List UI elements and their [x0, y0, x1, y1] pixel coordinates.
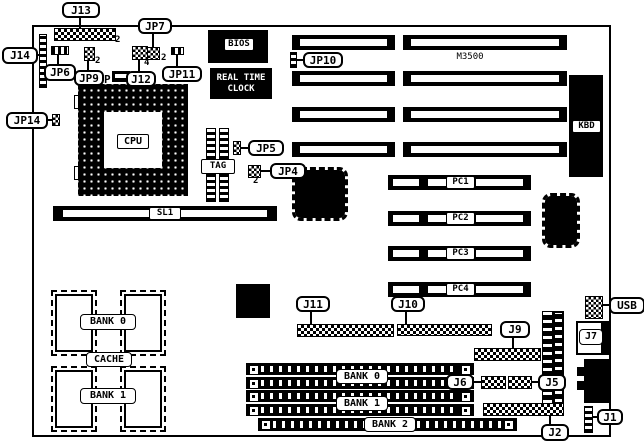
jp11-pointer-line	[176, 55, 178, 66]
isa-slot-4-left	[292, 142, 395, 157]
j9-header	[474, 348, 541, 361]
isa-slot-1-left	[292, 35, 395, 50]
jp9-pin-number: 2	[95, 57, 100, 66]
j13-label: J13	[62, 2, 100, 18]
jp11-label: JP11	[162, 66, 202, 82]
pc1-label: PC1	[446, 176, 475, 189]
j10-header	[397, 324, 492, 336]
io-chip	[236, 284, 270, 318]
jp9-jumper	[84, 47, 95, 61]
j6-label: J6	[446, 374, 474, 390]
jp6-jumper	[51, 46, 69, 55]
pc4-label: PC4	[446, 283, 475, 296]
j13-pin-number: 2	[115, 36, 120, 45]
pc2-label: PC2	[446, 212, 475, 225]
sl1-label: SL1	[149, 207, 181, 220]
j9-label: J9	[500, 321, 530, 338]
isa-slot-2-left	[292, 71, 395, 86]
j1-connector	[584, 406, 593, 433]
p-mark: P	[104, 74, 111, 85]
jp5-label: JP5	[248, 140, 284, 156]
simm-bank2-label: BANK 2	[364, 417, 416, 432]
j13-header	[54, 28, 116, 41]
isa-slot-3-left	[292, 107, 395, 122]
jp11-jumper	[171, 47, 184, 55]
rtc-chip: REAL TIME CLOCK	[210, 68, 272, 99]
j5-label: J5	[538, 374, 566, 391]
j12-pointer-line	[138, 60, 140, 71]
pc3-label: PC3	[446, 247, 475, 260]
j11-pointer-line	[310, 312, 312, 324]
motherboard-diagram: 2 J13 J14 JP6 2 JP9 P 4 J12 2 JP7 JP11 J…	[0, 0, 644, 446]
usb-label: USB	[609, 297, 644, 314]
isa-slot-3-right	[403, 107, 567, 122]
external-port-stack	[584, 359, 611, 403]
jp5-jumper	[233, 141, 241, 155]
j2-label: J2	[541, 424, 569, 441]
jp7-pointer-line	[152, 34, 154, 47]
j6-pointer-line	[474, 381, 481, 383]
jp10-connector	[290, 52, 297, 68]
j5-connector-small	[508, 376, 532, 389]
rtc-label-line1: REAL TIME	[217, 73, 266, 84]
cpu-socket-tab	[74, 166, 79, 180]
j6-connector	[481, 376, 506, 389]
external-port-notch	[577, 367, 585, 376]
jp7-pin-number: 2	[161, 54, 166, 63]
board-model-text: M3500	[420, 53, 520, 62]
external-port-notch	[577, 381, 585, 390]
chipset-qfp-2	[542, 193, 580, 248]
j10-pointer-line	[405, 312, 407, 324]
tag-label: TAG	[201, 159, 235, 174]
jp4-pointer-line	[261, 170, 270, 172]
jp14-jumper	[52, 114, 60, 126]
jp10-label: JP10	[303, 52, 343, 68]
jp9-label: JP9	[74, 70, 104, 86]
isa-slot-2-right	[403, 71, 567, 86]
j9-pointer-line	[512, 338, 514, 348]
cache-bank0-label: BANK 0	[80, 314, 136, 330]
usb-header	[585, 296, 603, 319]
jp4-pin-number: 2	[253, 177, 258, 186]
j1-label: J1	[597, 409, 623, 425]
simm-bank0-label: BANK 0	[336, 369, 388, 384]
j11-header	[297, 324, 394, 337]
kbd-label: KBD	[572, 120, 601, 133]
jp5-pointer-line	[241, 147, 248, 149]
jp14-label: JP14	[6, 112, 48, 129]
cpu-socket-tab	[74, 95, 79, 109]
rtc-label-line2: CLOCK	[227, 84, 254, 95]
cache-bank1-label: BANK 1	[80, 388, 136, 404]
j12-pin-number: 4	[144, 59, 149, 68]
cache-label: CACHE	[86, 352, 132, 367]
jp4-label: JP4	[270, 163, 306, 179]
j7-label: J7	[579, 329, 603, 345]
j11-label: J11	[296, 296, 330, 312]
simm-bank1-label: BANK 1	[336, 396, 388, 411]
jp6-label: JP6	[44, 64, 76, 81]
j14-label: J14	[2, 47, 38, 64]
isa-slot-1-right	[403, 35, 567, 50]
isa-slot-4-right	[403, 142, 567, 157]
cpu-label: CPU	[117, 134, 149, 149]
j12-label: J12	[126, 71, 156, 87]
j10-label: J10	[391, 296, 425, 312]
jp7-label: JP7	[138, 18, 172, 34]
j2-header	[483, 403, 564, 416]
bios-label: BIOS	[224, 38, 254, 51]
